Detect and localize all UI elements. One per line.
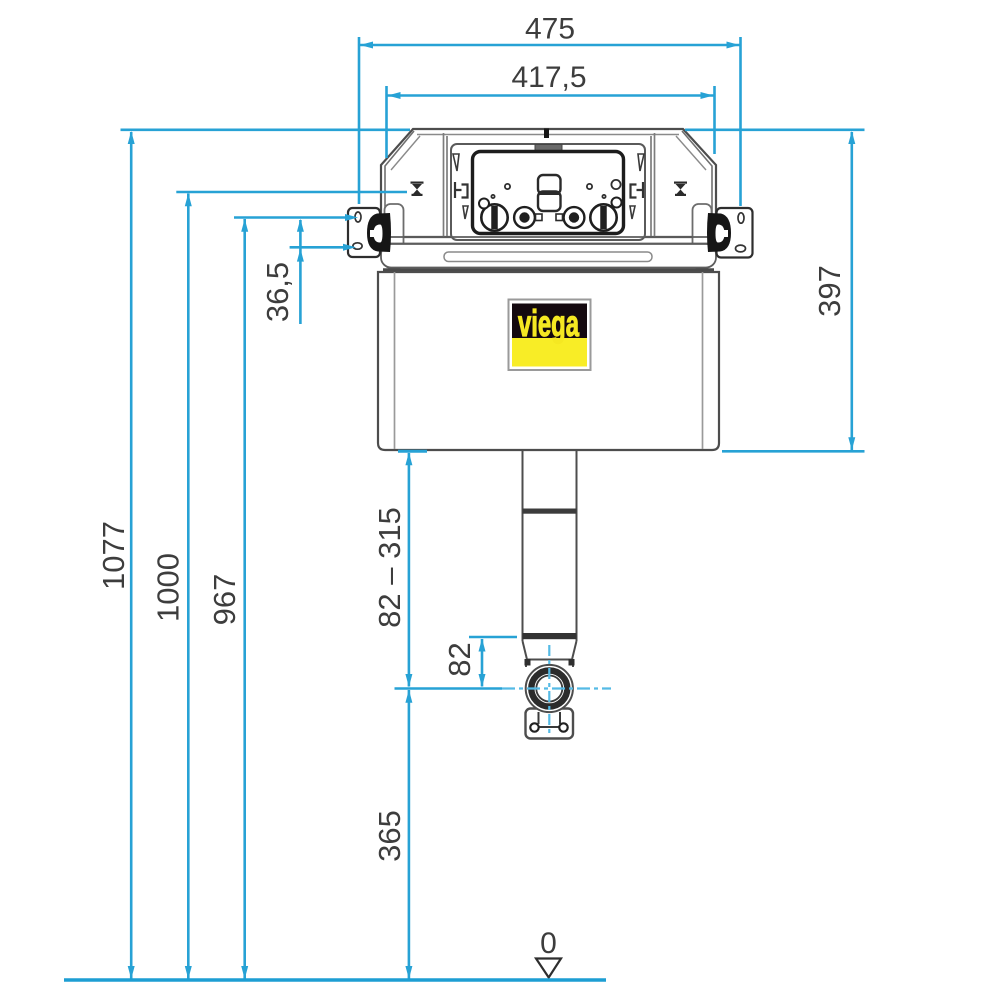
svg-text:967: 967 [207,574,242,626]
svg-text:1000: 1000 [151,553,186,622]
svg-text:0: 0 [540,927,557,960]
svg-text:82: 82 [442,642,477,676]
svg-text:397: 397 [812,265,847,317]
svg-text:475: 475 [525,13,575,46]
svg-text:417,5: 417,5 [511,61,586,94]
svg-text:82 – 315: 82 – 315 [372,507,407,628]
svg-text:36,5: 36,5 [260,262,295,322]
svg-text:1077: 1077 [96,521,131,590]
svg-text:viega: viega [518,303,579,344]
svg-text:365: 365 [372,810,407,862]
